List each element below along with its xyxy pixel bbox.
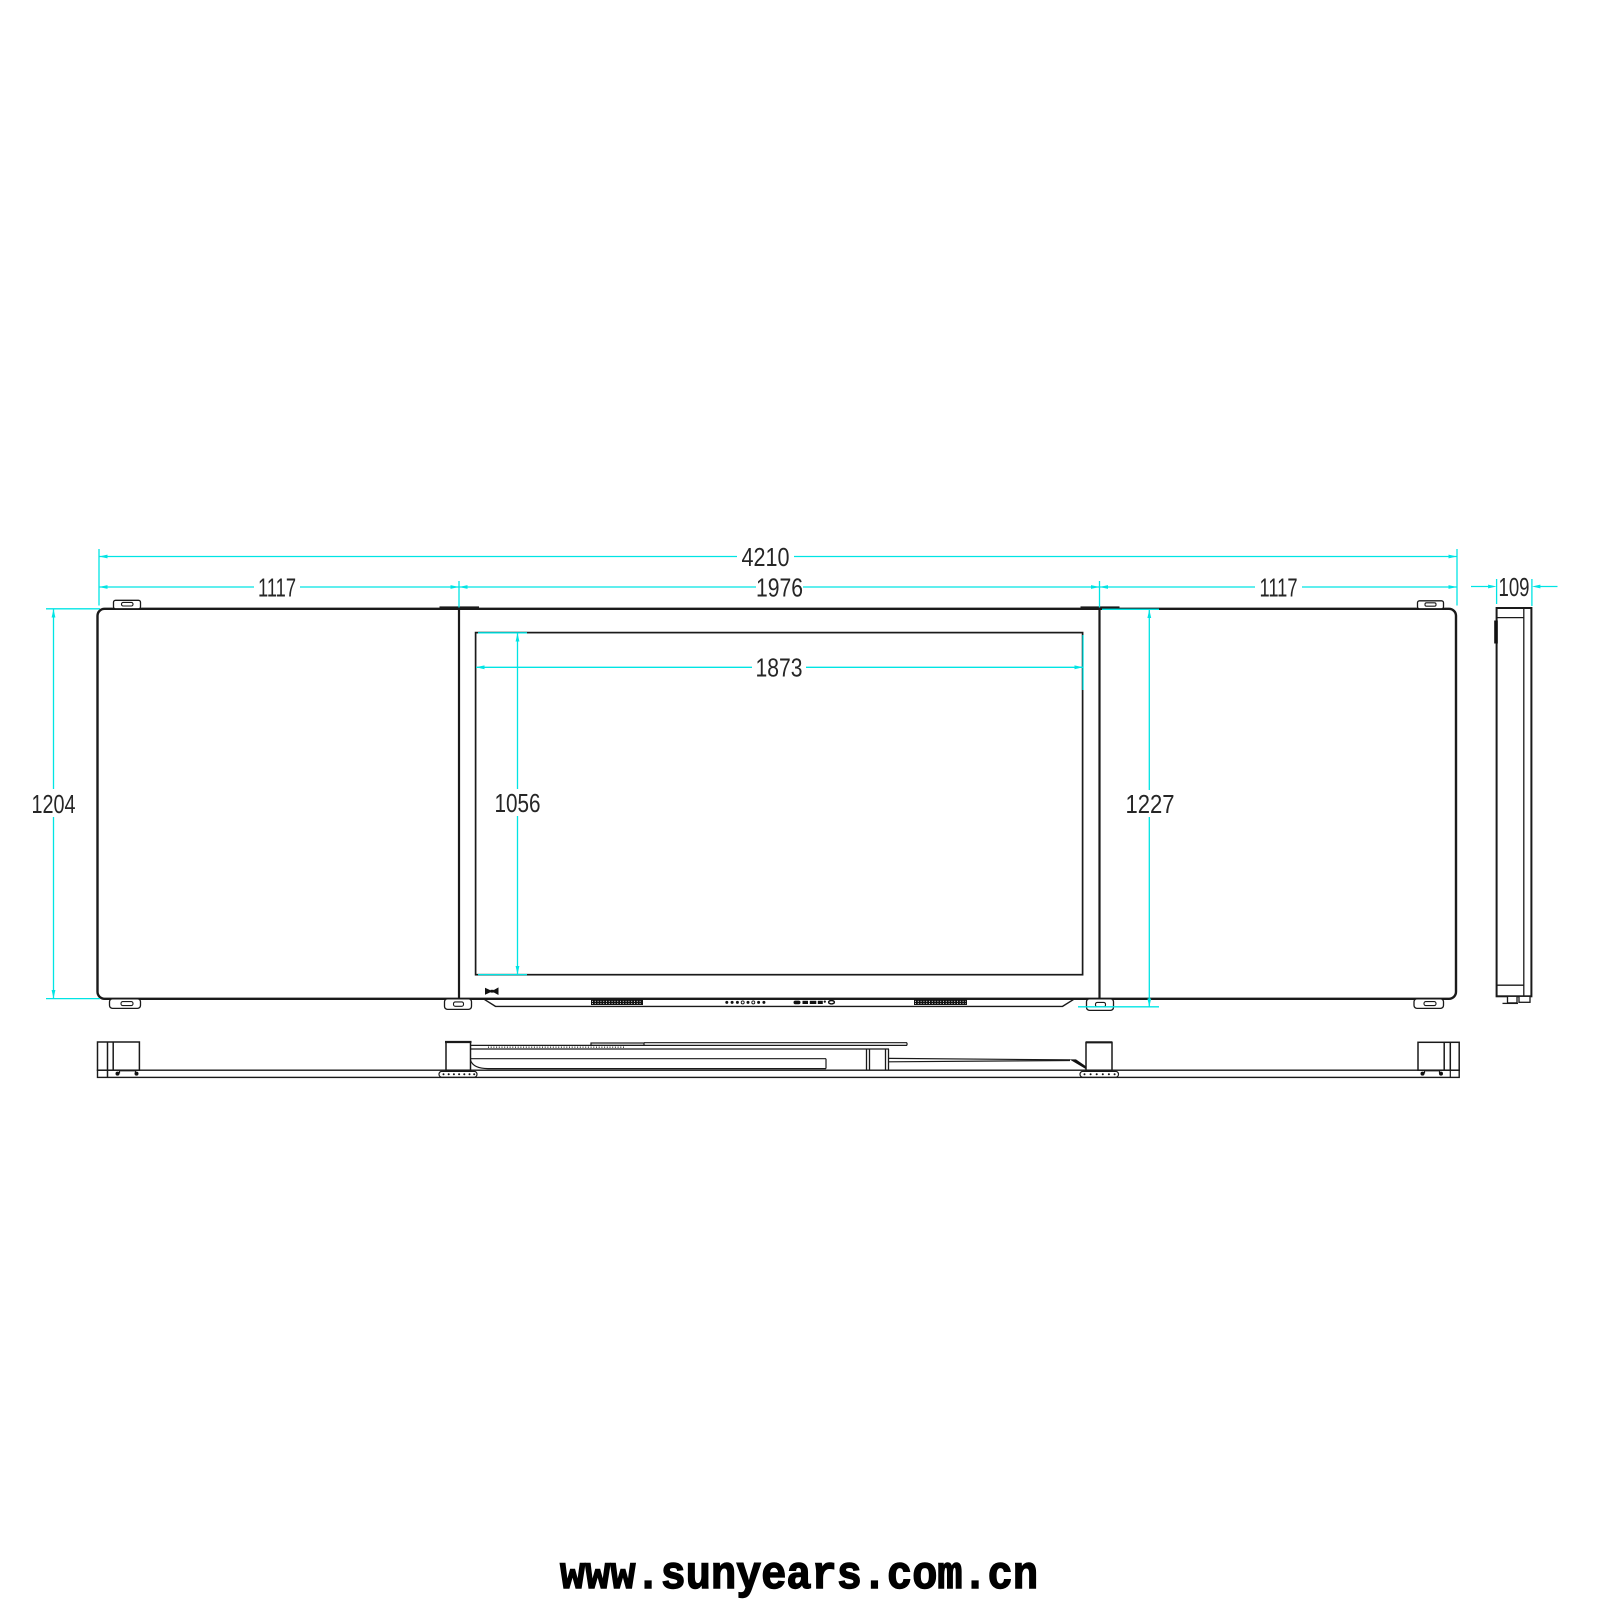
svg-text:1227: 1227 bbox=[1126, 789, 1175, 819]
svg-text:1976: 1976 bbox=[756, 572, 803, 602]
svg-text:www.sunyears.com.cn: www.sunyears.com.cn bbox=[560, 1550, 1038, 1600]
svg-text:4210: 4210 bbox=[742, 542, 790, 572]
svg-text:1204: 1204 bbox=[32, 789, 76, 819]
svg-text:1873: 1873 bbox=[756, 653, 803, 683]
svg-text:109: 109 bbox=[1499, 572, 1530, 602]
svg-text:1056: 1056 bbox=[495, 788, 541, 818]
svg-text:1117: 1117 bbox=[1260, 572, 1298, 602]
svg-text:1117: 1117 bbox=[258, 572, 296, 602]
